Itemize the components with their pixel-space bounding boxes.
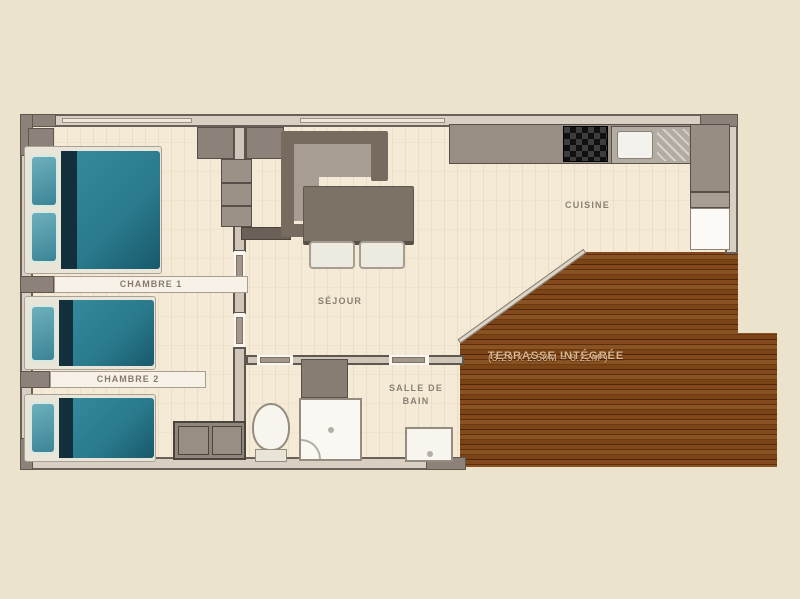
salle-de-bain-label-line2: BAIN (374, 395, 458, 408)
bathroom-door (392, 357, 425, 363)
kitchen-sink-unit (611, 126, 691, 164)
bed-headboard (61, 151, 77, 269)
bedroom2-label-strip: CHAMBRE 2 (50, 371, 206, 388)
salle-de-bain-label-line1: SALLE DE (374, 382, 458, 395)
bedroom2-door (236, 317, 243, 344)
sofa-arm-right (371, 131, 388, 181)
bed-cover (73, 398, 154, 458)
corridor-wardrobe (173, 421, 246, 460)
terrace-label-dimensions: (3.29 X 2.50M = 8.22M²) (488, 353, 608, 364)
bed-cover (77, 151, 160, 269)
bathroom-cabinet (301, 359, 348, 398)
bathroom-sink (405, 427, 453, 462)
wardrobe-door (212, 426, 242, 455)
toilet-tank (255, 449, 287, 462)
window-bedroom1 (62, 118, 192, 123)
fridge (690, 208, 730, 250)
window-sejour (300, 118, 445, 123)
kitchen-cabinet-low (690, 192, 730, 208)
bedroom1-label: CHAMBRE 1 (120, 279, 183, 289)
wardrobe-sejour (246, 127, 284, 159)
wardrobe-bedroom1 (197, 127, 234, 159)
single-bed-2 (24, 394, 156, 462)
chair (309, 241, 355, 269)
hob (563, 126, 608, 162)
pillow (30, 305, 56, 362)
bed-headboard (59, 398, 73, 458)
divider-cap-2 (20, 371, 50, 388)
sofa-seat-top (294, 144, 371, 177)
single-bed-1 (24, 296, 156, 370)
kitchen-drainer (657, 129, 689, 161)
salle-de-bain-label: SALLE DE BAIN (374, 382, 458, 408)
bed-headboard (59, 300, 73, 366)
cuisine-label: CUISINE (540, 200, 635, 210)
kitchen-sink-bowl (617, 131, 653, 159)
floorplan-canvas: TERRASSE INTÉGRÉE (3.29 X 2.50M = 8.22M²… (0, 0, 800, 599)
bedroom2-label: CHAMBRE 2 (97, 374, 160, 384)
divider-cap-1 (20, 276, 54, 293)
bedroom1-label-strip: CHAMBRE 1 (54, 276, 248, 293)
storage-column (221, 159, 252, 227)
pillow (30, 155, 58, 207)
bed-cover (73, 300, 154, 366)
bedside-cabinet (28, 128, 54, 148)
wardrobe-door (178, 426, 209, 455)
kitchen-cabinet-tall (690, 124, 730, 192)
dining-table (303, 186, 414, 245)
double-bed (24, 146, 162, 274)
shower-door (301, 439, 321, 459)
sejour-label: SÉJOUR (295, 296, 385, 306)
sink-drain (427, 451, 433, 457)
chair (359, 241, 405, 269)
shower-drain (328, 427, 334, 433)
sofa-back-left (281, 131, 294, 228)
shower (299, 398, 362, 461)
toilet-bowl (252, 403, 290, 451)
wc-door (260, 357, 290, 363)
pillow (30, 211, 58, 263)
pillow (30, 402, 56, 454)
